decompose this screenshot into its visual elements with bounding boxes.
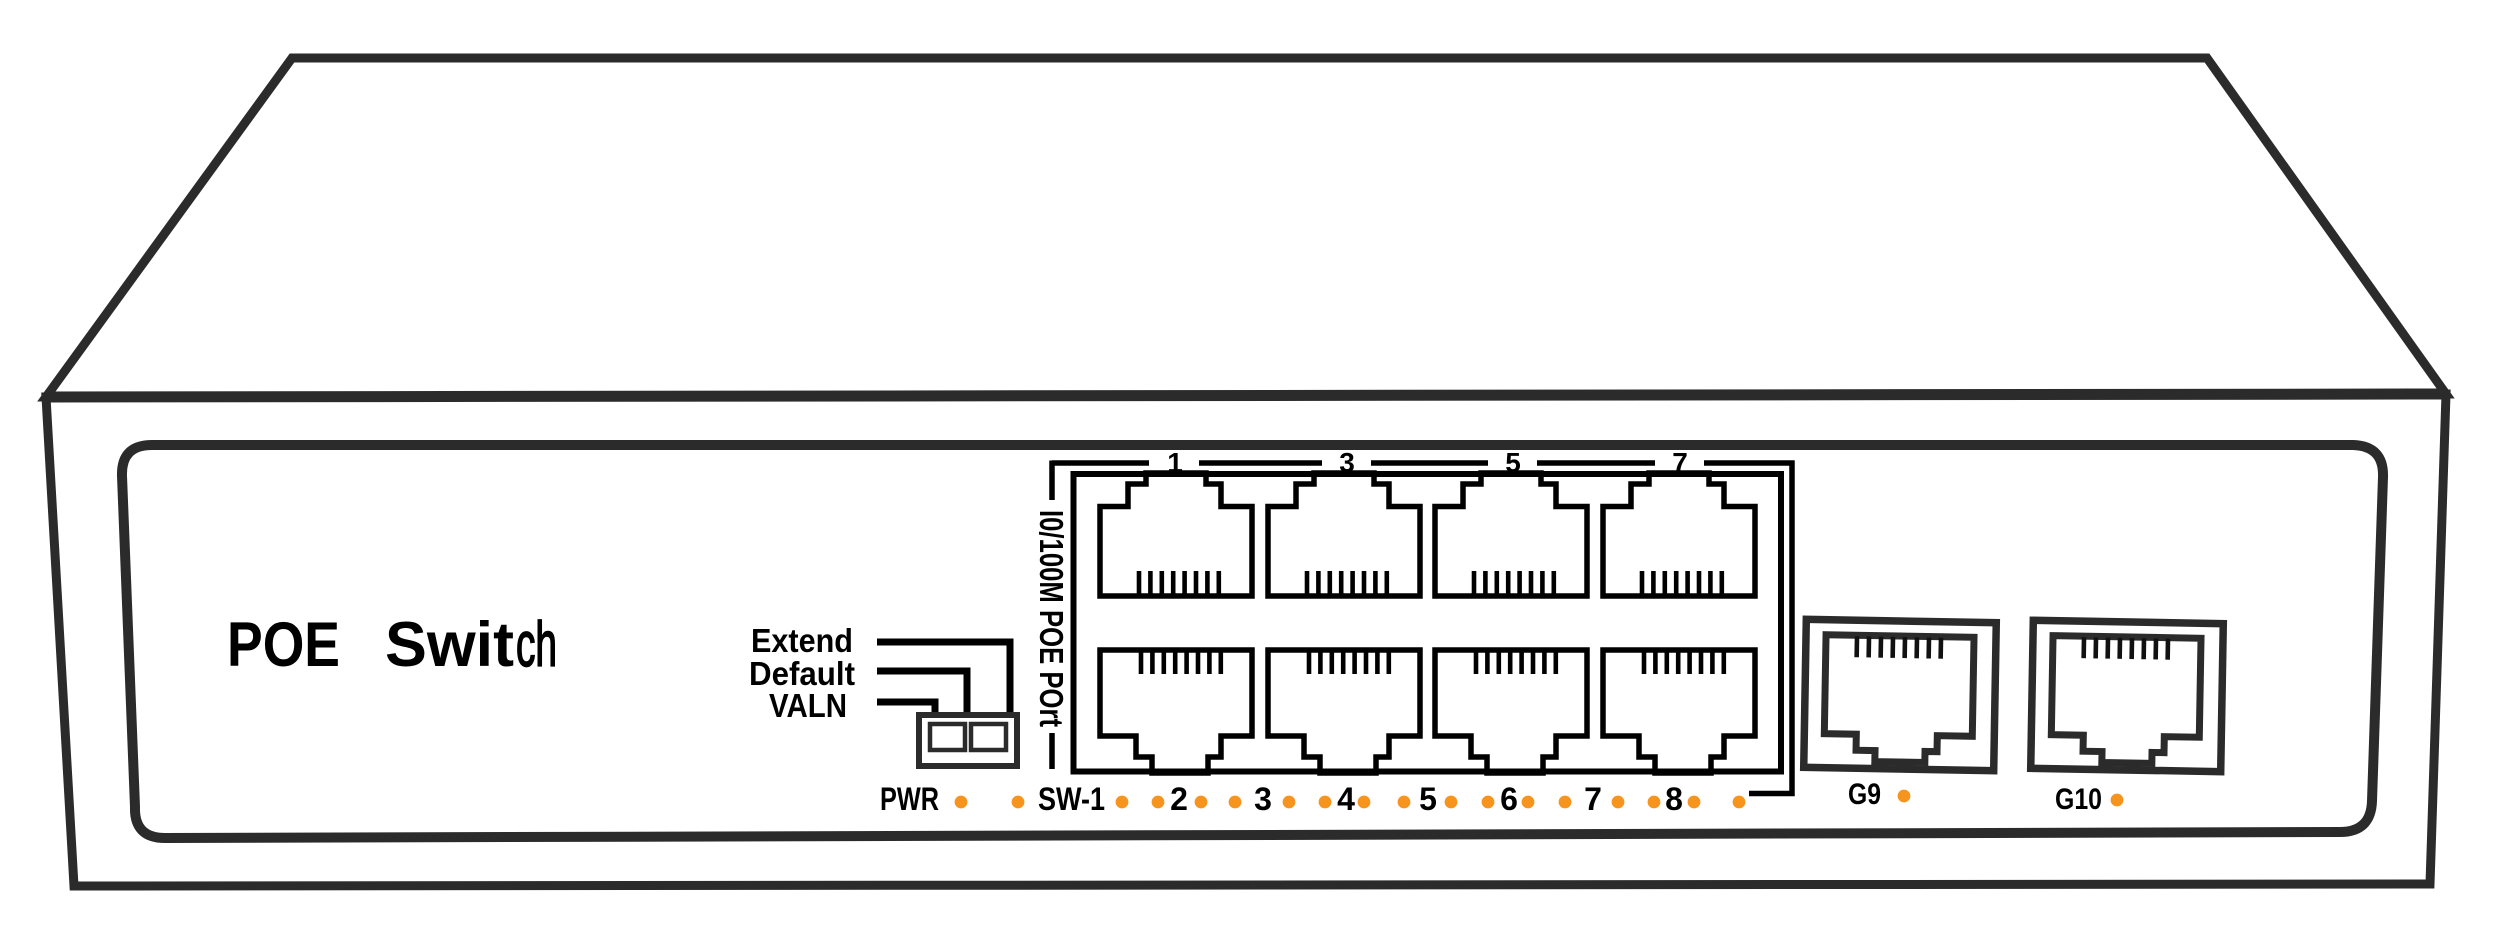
svg-text:7: 7: [1584, 781, 1602, 817]
svg-text:G10: G10: [2055, 783, 2102, 816]
svg-text:3: 3: [1254, 781, 1272, 817]
svg-text:SW-1: SW-1: [1038, 781, 1105, 817]
svg-text:2: 2: [1170, 781, 1188, 817]
svg-text:VALN: VALN: [769, 687, 847, 724]
svg-text:Extend: Extend: [751, 622, 853, 659]
svg-text:4: 4: [1337, 781, 1355, 817]
svg-text:G9: G9: [1848, 778, 1881, 811]
svg-text:5: 5: [1419, 781, 1437, 817]
svg-text:8: 8: [1665, 781, 1683, 817]
svg-text:I0/100M POE POrt: I0/100M POE POrt: [1033, 510, 1070, 727]
svg-text:Swit: Swit: [385, 610, 514, 680]
svg-text:PWR: PWR: [880, 781, 939, 817]
svg-text:6: 6: [1500, 781, 1518, 817]
svg-text:ch: ch: [516, 610, 557, 680]
svg-text:POE: POE: [227, 610, 340, 680]
